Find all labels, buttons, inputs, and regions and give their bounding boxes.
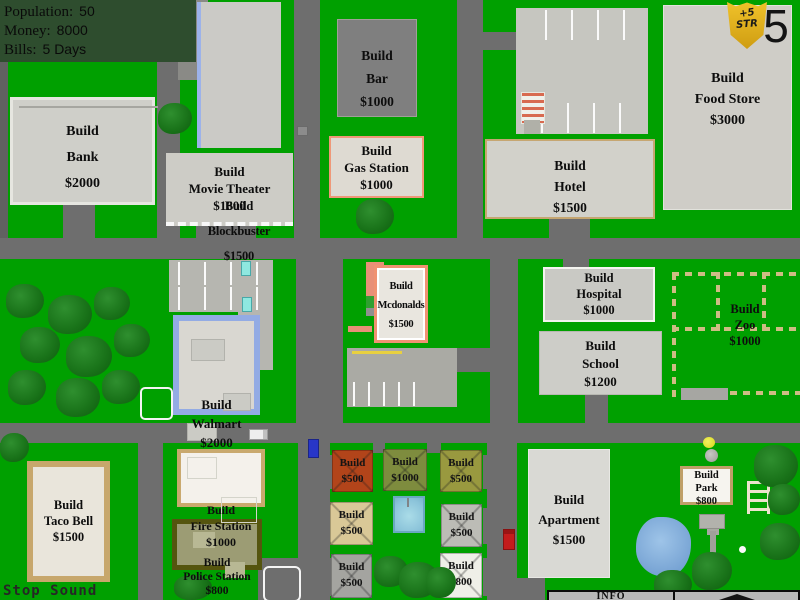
tree xyxy=(356,199,394,234)
money-label: Money: xyxy=(4,23,51,40)
build-mcdonalds-button[interactable]: Build Mcdonalds $1500 xyxy=(374,265,428,343)
button-label: $1500 xyxy=(487,197,653,218)
build-park-button[interactable]: Build Park $800 xyxy=(680,466,733,505)
road-vertical-5 xyxy=(490,258,518,425)
court-outline xyxy=(140,387,173,420)
pond xyxy=(636,517,691,577)
build-taco-bell-button[interactable]: Build Taco Bell $1500 xyxy=(27,461,110,582)
tree xyxy=(48,295,92,334)
button-label: Build xyxy=(177,556,257,570)
lot-label: $500 xyxy=(441,471,481,487)
button-label: Gas Station xyxy=(331,159,422,176)
button-label: Build xyxy=(377,277,425,296)
build-lot-button[interactable]: Build $1000 xyxy=(383,449,427,491)
blockbuster-blue-stripe xyxy=(197,2,201,148)
button-label: Food Store xyxy=(664,89,791,110)
white-dot xyxy=(739,546,746,553)
tree xyxy=(66,336,112,377)
lot-label: Build xyxy=(332,559,371,575)
parking-lines xyxy=(178,287,270,310)
tree xyxy=(760,523,800,560)
driveway-hotel xyxy=(549,219,590,240)
button-label: Build xyxy=(179,395,254,414)
button-label: Build xyxy=(487,155,653,176)
button-label: Build xyxy=(545,270,653,286)
build-lot-button[interactable]: Build $500 xyxy=(330,502,373,545)
button-label: Mcdonalds xyxy=(377,296,425,315)
road-vertical-4 xyxy=(296,258,343,425)
tree xyxy=(56,378,100,417)
button-label: Build xyxy=(540,337,661,355)
driveway-lot xyxy=(318,558,332,596)
driveway-lot xyxy=(427,443,441,453)
button-label: $1000 xyxy=(338,90,416,113)
build-lot-button[interactable]: Build $500 xyxy=(331,554,372,598)
build-hospital-button[interactable]: Build Hospital $1000 xyxy=(543,267,655,322)
population-label: Population: xyxy=(4,4,73,21)
gray-box xyxy=(297,126,308,136)
money-row: Money: 8000 xyxy=(0,22,196,41)
stop-sound-button[interactable]: Stop Sound xyxy=(3,583,163,600)
parking-lines xyxy=(541,103,642,133)
driveway-school xyxy=(585,395,608,425)
walmart-shelf xyxy=(191,339,225,361)
button-label: Build xyxy=(166,163,293,180)
tree xyxy=(20,327,60,363)
tree xyxy=(114,324,150,357)
button-label: Taco Bell xyxy=(33,513,104,529)
green-notch xyxy=(648,8,662,27)
lot-label: Build xyxy=(333,455,372,471)
tree xyxy=(8,370,46,405)
button-label: Build xyxy=(529,490,609,510)
zoo-entrance xyxy=(681,388,728,400)
driveway-lot xyxy=(483,508,497,544)
shopping-cart-icon xyxy=(242,297,252,312)
button-label: $2000 xyxy=(13,171,152,197)
tree xyxy=(94,287,130,320)
button-label: Apartment xyxy=(529,510,609,530)
button-label: $1000 xyxy=(181,534,261,550)
tree xyxy=(102,370,140,404)
button-label: $1000 xyxy=(331,176,422,193)
button-label: Hospital xyxy=(545,286,653,302)
button-label: $2000 xyxy=(179,433,254,452)
road-vertical-6 xyxy=(138,443,163,600)
zoo-fence xyxy=(672,272,800,276)
button-label: Build xyxy=(33,497,104,513)
build-bar-button[interactable]: Build Bar $1000 xyxy=(337,19,417,117)
button-label: $1500 xyxy=(529,530,609,550)
button-label: Build xyxy=(664,68,791,89)
fire-station-room xyxy=(187,457,217,479)
button-label: Build xyxy=(683,469,730,482)
button-label: $1600 xyxy=(166,197,293,214)
swimming-pool xyxy=(393,496,425,533)
lot-label: Build xyxy=(442,509,481,525)
button-label: Hotel xyxy=(487,176,653,197)
build-zoo-button[interactable]: Build Zoo $1000 xyxy=(703,301,787,355)
park-bench xyxy=(699,514,725,529)
lot-label: Build xyxy=(384,454,426,470)
button-label: $800 xyxy=(683,495,730,508)
lot-label: $500 xyxy=(333,471,372,487)
info-button[interactable]: INFO xyxy=(549,592,675,600)
button-label: Movie Theater xyxy=(166,180,293,197)
bills-value: 5 Days xyxy=(43,41,87,57)
build-fire-station-button[interactable]: Build Fire Station $1000 xyxy=(177,449,265,507)
button-label: $1500 xyxy=(197,244,281,269)
lot-label: $500 xyxy=(331,523,372,539)
bills-label: Bills: xyxy=(4,42,37,59)
button-label: Blockbuster xyxy=(197,219,281,244)
build-lot-button[interactable]: Build $500 xyxy=(441,504,482,547)
lot-label: $500 xyxy=(442,525,481,541)
road-horizontal-a xyxy=(0,238,800,259)
parking-lines xyxy=(545,10,646,40)
lot-label: $1000 xyxy=(384,470,426,486)
build-lot-button[interactable]: Build $500 xyxy=(440,450,482,492)
button-label: Police Station xyxy=(177,570,257,584)
road-stub-hotel xyxy=(457,32,517,50)
up-arrow-icon xyxy=(707,594,767,600)
game-map: Build Bank $2000 Build Blockbuster $1500… xyxy=(0,0,800,600)
zoo-fence xyxy=(672,272,676,397)
red-vehicle xyxy=(503,529,515,550)
button-label: $3000 xyxy=(664,110,791,131)
stats-panel: Population: 50 Money: 8000 Bills: 5 Days xyxy=(0,0,196,62)
button-label: Build xyxy=(181,502,261,518)
flower-yellow xyxy=(703,437,715,448)
build-school-button[interactable]: Build School $1200 xyxy=(539,331,662,395)
lot-label: Build xyxy=(331,507,372,523)
build-gas-station-button[interactable]: Build Gas Station $1000 xyxy=(329,136,424,198)
driveway-lot xyxy=(483,558,497,596)
tree xyxy=(6,284,44,318)
button-label: $1500 xyxy=(377,315,425,334)
pool-ladder xyxy=(407,498,409,507)
lot-label: $500 xyxy=(332,575,371,591)
button-label: Build xyxy=(13,119,152,145)
expand-panel-button[interactable] xyxy=(675,592,798,600)
tree xyxy=(754,445,798,487)
button-label: $1500 xyxy=(33,529,104,545)
court-outline xyxy=(263,566,301,600)
build-food-store-button[interactable]: Build Food Store $3000 xyxy=(663,5,792,210)
build-hotel-button[interactable]: Build Hotel $1500 xyxy=(485,139,655,219)
tree xyxy=(0,433,29,462)
button-label: Build xyxy=(338,44,416,67)
button-label: $1200 xyxy=(540,373,661,391)
button-label: Fire Station xyxy=(181,518,261,534)
tree xyxy=(692,552,732,590)
tree xyxy=(768,484,800,515)
button-label: Build xyxy=(703,301,787,317)
button-label: Walmart xyxy=(179,414,254,433)
build-blockbuster-button[interactable]: Build Blockbuster $1500 xyxy=(197,2,281,148)
build-lot-button[interactable]: Build $500 xyxy=(332,450,373,492)
population-value: 50 xyxy=(79,3,95,19)
fire-escape-base xyxy=(524,120,540,134)
button-label: Bar xyxy=(338,67,416,90)
bills-row: Bills: 5 Days xyxy=(0,41,196,60)
button-label: School xyxy=(540,355,661,373)
mcdonalds-structure xyxy=(348,326,372,332)
green-notch xyxy=(648,57,662,71)
money-value: 8000 xyxy=(57,22,88,38)
lot-label: Build xyxy=(441,455,481,471)
driveway-bank xyxy=(63,205,95,240)
build-bank-button[interactable]: Build Bank $2000 xyxy=(10,97,155,205)
road-horizontal-b xyxy=(0,423,800,443)
zoo-fence xyxy=(730,391,800,395)
blue-vehicle xyxy=(308,439,319,458)
button-label: Zoo xyxy=(703,317,787,333)
parking-lines xyxy=(353,382,425,406)
road-vertical-2 xyxy=(294,0,320,240)
build-walmart-button[interactable]: Build Walmart $2000 xyxy=(173,315,260,415)
button-label: Park xyxy=(683,482,730,495)
button-label: $1000 xyxy=(545,302,653,318)
button-label: Bank xyxy=(13,145,152,171)
population-row: Population: 50 xyxy=(0,3,196,22)
driveway-lot xyxy=(318,455,332,489)
flower-gray xyxy=(705,449,718,462)
button-label: $800 xyxy=(177,584,257,598)
info-bar: INFO xyxy=(547,590,800,600)
build-apartment-button[interactable]: Build Apartment $1500 xyxy=(528,449,610,578)
button-label: $1000 xyxy=(703,333,787,349)
driveway-lot xyxy=(483,455,497,489)
button-label: Build xyxy=(331,142,422,159)
tree xyxy=(158,103,192,134)
parking-yellow-line xyxy=(352,351,402,354)
